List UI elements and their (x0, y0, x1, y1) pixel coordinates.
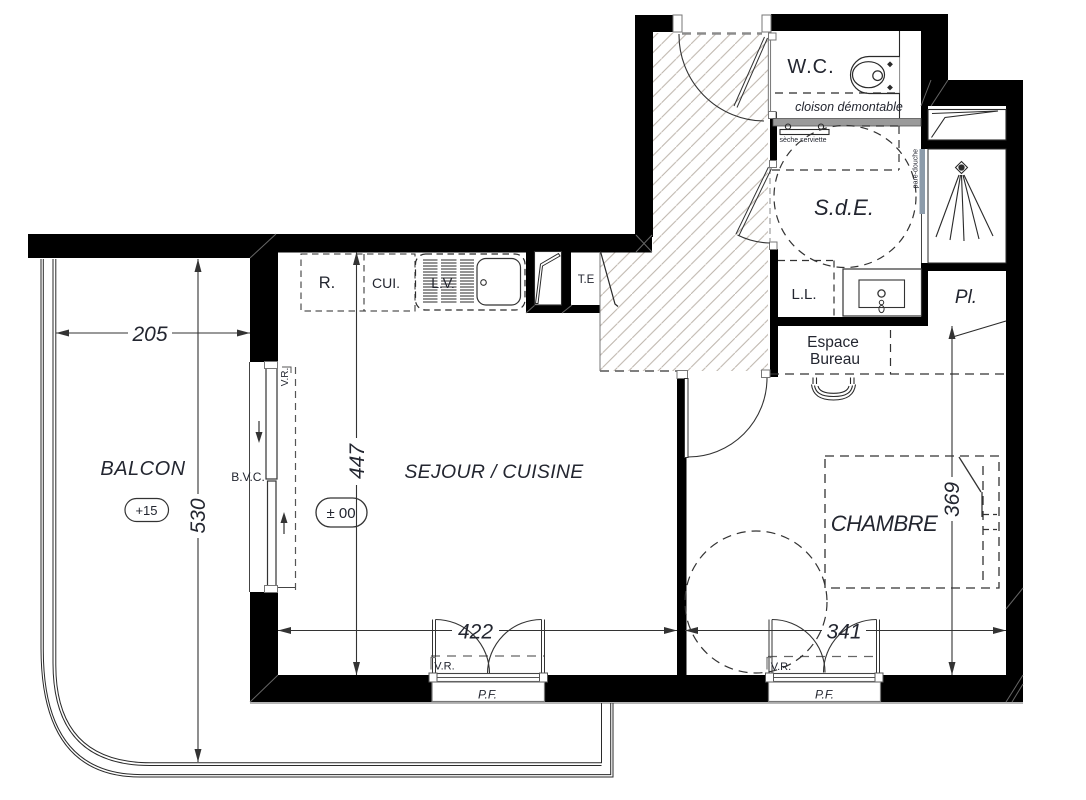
svg-text:cloison démontable: cloison démontable (795, 100, 903, 114)
svg-text:pare-douche: pare-douche (913, 149, 920, 188)
svg-text:V.R.: V.R. (434, 661, 454, 673)
svg-text:P.F.: P.F. (478, 688, 497, 702)
svg-text:± 00: ± 00 (326, 505, 355, 522)
svg-text:447: 447 (346, 443, 369, 479)
svg-text:530: 530 (187, 498, 210, 533)
svg-text:P.F.: P.F. (815, 688, 834, 702)
svg-text:B.V.C.: B.V.C. (231, 470, 265, 484)
svg-text:T.E: T.E (578, 274, 595, 286)
svg-text:CHAMBRE: CHAMBRE (831, 511, 938, 536)
svg-text:Pl.: Pl. (955, 287, 977, 308)
svg-text:+15: +15 (135, 503, 157, 518)
svg-text:L.L.: L.L. (791, 286, 816, 303)
svg-text:BALCON: BALCON (100, 458, 185, 480)
svg-text:L.V.: L.V. (431, 275, 455, 291)
svg-text:341: 341 (826, 621, 861, 644)
svg-text:S.d.E.: S.d.E. (814, 195, 874, 220)
svg-text:CUI.: CUI. (372, 275, 400, 291)
svg-text:Espace: Espace (807, 334, 859, 351)
svg-text:V.R.: V.R. (280, 368, 291, 387)
svg-text:sèche serviette: sèche serviette (779, 137, 826, 144)
svg-text:V.R.: V.R. (771, 661, 791, 673)
svg-text:W.C.: W.C. (787, 56, 834, 78)
svg-text:422: 422 (458, 621, 493, 644)
svg-text:369: 369 (941, 482, 964, 517)
svg-text:R.: R. (319, 274, 336, 292)
svg-text:Bureau: Bureau (810, 351, 860, 368)
svg-text:205: 205 (131, 323, 167, 346)
svg-text:SEJOUR / CUISINE: SEJOUR / CUISINE (404, 461, 584, 483)
